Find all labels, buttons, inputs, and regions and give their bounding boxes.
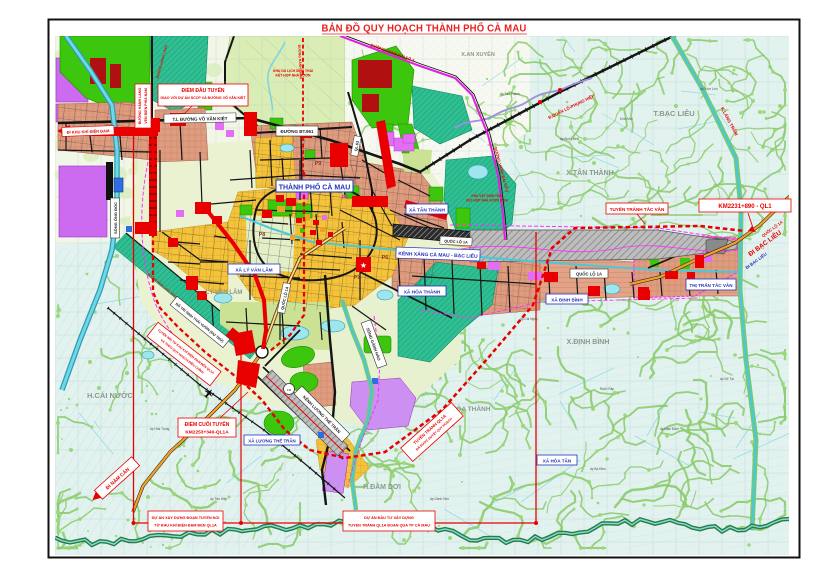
svg-text:ĐIỂM ĐẦU TUYẾN: ĐIỂM ĐẦU TUYẾN <box>181 87 224 94</box>
svg-text:ấp Bùng Binh: ấp Bùng Binh <box>560 137 579 141</box>
svg-text:H.CÁI NƯỚC: H.CÁI NƯỚC <box>87 391 134 400</box>
svg-text:X.TÂN THÀNH: X.TÂN THÀNH <box>566 168 613 177</box>
svg-text:KẾT HỢP NHÀ VƯỜN: KẾT HỢP NHÀ VƯỜN <box>276 73 311 78</box>
svg-text:GIAO VỚI DỰ ÁN SCCP VÀ ĐƯỜNG V: GIAO VỚI DỰ ÁN SCCP VÀ ĐƯỜNG VÕ VĂN KIỆT <box>160 95 246 100</box>
svg-text:ấp Sở Tại: ấp Sở Tại <box>720 377 734 381</box>
svg-text:XÃ HÒA TÂN: XÃ HÒA TÂN <box>543 457 572 464</box>
svg-text:ĐƯỜNG HÀNH LANG: ĐƯỜNG HÀNH LANG <box>137 88 142 125</box>
svg-text:ĐIỂM CUỐI TUYẾN: ĐIỂM CUỐI TUYẾN <box>185 421 230 428</box>
svg-text:BẢN ĐỒ QUY HOẠCH THÀNH PHỐ CÀ: BẢN ĐỒ QUY HOẠCH THÀNH PHỐ CÀ MAU <box>322 21 527 35</box>
svg-text:TUYẾN TRÁNH QL1A ĐOẠN QUA TP C: TUYẾN TRÁNH QL1A ĐOẠN QUA TP CÀ MAU <box>348 523 430 528</box>
svg-text:P8: P8 <box>259 232 266 238</box>
svg-text:KM2253+340-QL1A: KM2253+340-QL1A <box>185 430 229 436</box>
svg-text:TỪ KHU KHÍ ĐIỆN ĐẠM ĐẾN QL1A: TỪ KHU KHÍ ĐIỆN ĐẠM ĐẾN QL1A <box>154 523 217 528</box>
svg-text:KẾT HỢP NHÀ VƯỜN Ở XA: KẾT HỢP NHÀ VƯỜN Ở XA <box>466 198 508 203</box>
svg-text:P4: P4 <box>342 195 348 201</box>
svg-text:QUỐC LỘ 1A: QUỐC LỘ 1A <box>576 272 602 277</box>
svg-text:KM: KM <box>287 388 292 392</box>
svg-text:XÃ ĐỊNH BÌNH: XÃ ĐỊNH BÌNH <box>551 296 583 303</box>
svg-text:XÃ LÝ VĂN LÂM: XÃ LÝ VĂN LÂM <box>235 267 272 274</box>
svg-text:KHU VẬT SINH THÁI: KHU VẬT SINH THÁI <box>472 193 503 198</box>
svg-text:TUYẾN TRÁNH TẮC VÂN: TUYẾN TRÁNH TẮC VÂN <box>610 205 665 212</box>
svg-text:ấp Bà Điều: ấp Bà Điều <box>590 467 606 471</box>
svg-text:T.BẠC LIÊU: T.BẠC LIÊU <box>653 109 694 118</box>
svg-text:X.ĐỊNH BÌNH: X.ĐỊNH BÌNH <box>567 337 610 346</box>
svg-text:P7: P7 <box>354 275 361 281</box>
svg-text:P6: P6 <box>382 255 389 261</box>
svg-text:ấp Năm Đảm: ấp Năm Đảm <box>660 427 679 431</box>
svg-text:DỰ ÁN ĐẦU TƯ XÂY DỰNG: DỰ ÁN ĐẦU TƯ XÂY DỰNG <box>364 515 414 520</box>
svg-text:KM2231+890 - QL1: KM2231+890 - QL1 <box>718 204 772 210</box>
svg-text:XÃ TÂN THÀNH: XÃ TÂN THÀNH <box>409 207 446 214</box>
svg-text:ấp Xóm Lớn: ấp Xóm Lớn <box>700 87 718 91</box>
svg-text:ấp Gành Hào: ấp Gành Hào <box>430 497 449 501</box>
svg-text:ấp Tân Hiệp: ấp Tân Hiệp <box>210 497 228 501</box>
svg-text:KHU DU LỊCH SINH THÁI: KHU DU LỊCH SINH THÁI <box>273 68 313 73</box>
svg-text:Rạch Rập: Rạch Rập <box>600 387 614 391</box>
svg-text:ấp Tân Thạnh: ấp Tân Thạnh <box>500 92 520 96</box>
svg-text:XÃ LƯƠNG THẾ TRÂN: XÃ LƯƠNG THẾ TRÂN <box>248 439 295 444</box>
svg-text:Kinh Mới: Kinh Mới <box>620 117 633 121</box>
svg-text:DỰ ÁN XÂY DỰNG ĐOẠN TUYẾN NỐI: DỰ ÁN XÂY DỰNG ĐOẠN TUYẾN NỐI <box>152 515 220 520</box>
svg-text:LÝ VĂN LÂM: LÝ VĂN LÂM <box>206 289 243 296</box>
svg-text:X.AN XUYÊN: X.AN XUYÊN <box>461 50 495 58</box>
svg-text:ĐƯỜNG BT.961: ĐƯỜNG BT.961 <box>280 127 314 134</box>
svg-text:ấp Hòa Trung: ấp Hòa Trung <box>150 427 170 431</box>
svg-text:SÔNG ÔNG ĐỐC: SÔNG ÔNG ĐỐC <box>113 202 118 234</box>
svg-text:VEN BIỂN PHÍA NAM: VEN BIỂN PHÍA NAM <box>143 88 148 124</box>
svg-text:THỊ TRẤN TẮC VÂN: THỊ TRẤN TẮC VÂN <box>689 281 733 288</box>
svg-text:P9: P9 <box>315 161 322 167</box>
svg-text:★: ★ <box>360 261 367 270</box>
svg-text:ấp Cái Ngay: ấp Cái Ngay <box>520 317 538 321</box>
